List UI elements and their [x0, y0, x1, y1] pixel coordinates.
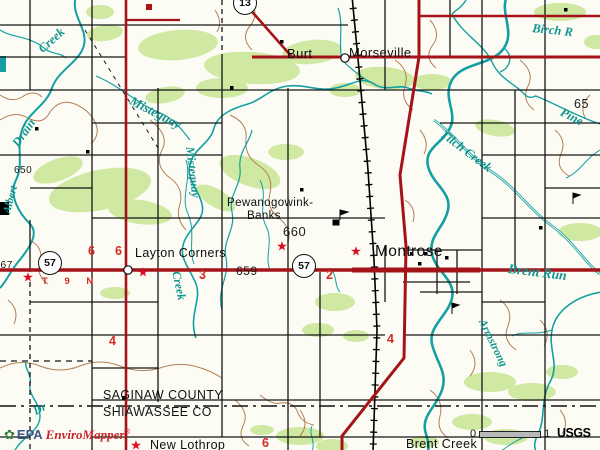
epa-enviromapper-logo: ✿ EPA EnviroMapper ® [4, 428, 130, 441]
section-number: 6 [262, 437, 269, 450]
scale-bar-graphic [479, 431, 541, 438]
elevation-label: 660 [283, 225, 306, 238]
usgs-logo: USGS [557, 426, 590, 440]
epa-flower-icon: ✿ [4, 428, 15, 441]
township-range-label: T 9 N [42, 276, 100, 287]
elevation-label: 667 [0, 260, 13, 271]
county-label-saginaw: SAGINAW COUNTY [103, 387, 223, 402]
section-number: 6 [88, 245, 95, 258]
facility-star-icon[interactable]: ★ [22, 271, 34, 284]
facility-star-icon[interactable]: ★ [350, 245, 362, 258]
section-number: 4 [387, 333, 394, 346]
scale-end-label: 1 [544, 428, 550, 440]
map-viewport[interactable]: BurtMorsevillePewanogowink-BanksLayton C… [0, 0, 600, 450]
facility-star-icon[interactable]: ★ [137, 266, 149, 279]
route-shield: 57 [292, 254, 316, 278]
elevation-label: 650 [14, 166, 32, 176]
elevation-label: 659 [236, 265, 258, 277]
place-label: Banks [247, 211, 281, 223]
county-label-shiawassee: SHIAWASSEE CO [103, 404, 212, 419]
place-label: Brent Creek [406, 438, 477, 450]
section-number: 3 [199, 269, 206, 282]
enviromapper-wordmark: EnviroMapper [46, 428, 125, 441]
place-label: Morseville [349, 46, 412, 59]
place-label: Pewanogowink- [227, 198, 313, 210]
place-label: Montrose [375, 244, 443, 260]
place-label: Burt [287, 47, 312, 60]
section-number: 2 [326, 269, 333, 282]
place-label: New Lothrop [150, 439, 225, 450]
scale-start-label: 0 [470, 428, 476, 440]
place-label: Layton Corners [135, 247, 226, 260]
facility-star-icon[interactable]: ★ [276, 240, 288, 253]
elevation-label: 65 [574, 98, 589, 111]
registered-mark: ® [124, 428, 130, 436]
route-shield: 57 [38, 251, 62, 275]
facility-star-icon[interactable]: ★ [130, 439, 142, 450]
red-building [146, 4, 152, 10]
scale-bar: 0 1 [470, 428, 550, 440]
section-number: 4 [109, 335, 116, 348]
epa-text: EPA [17, 428, 43, 441]
section-number: 6 [115, 245, 122, 258]
